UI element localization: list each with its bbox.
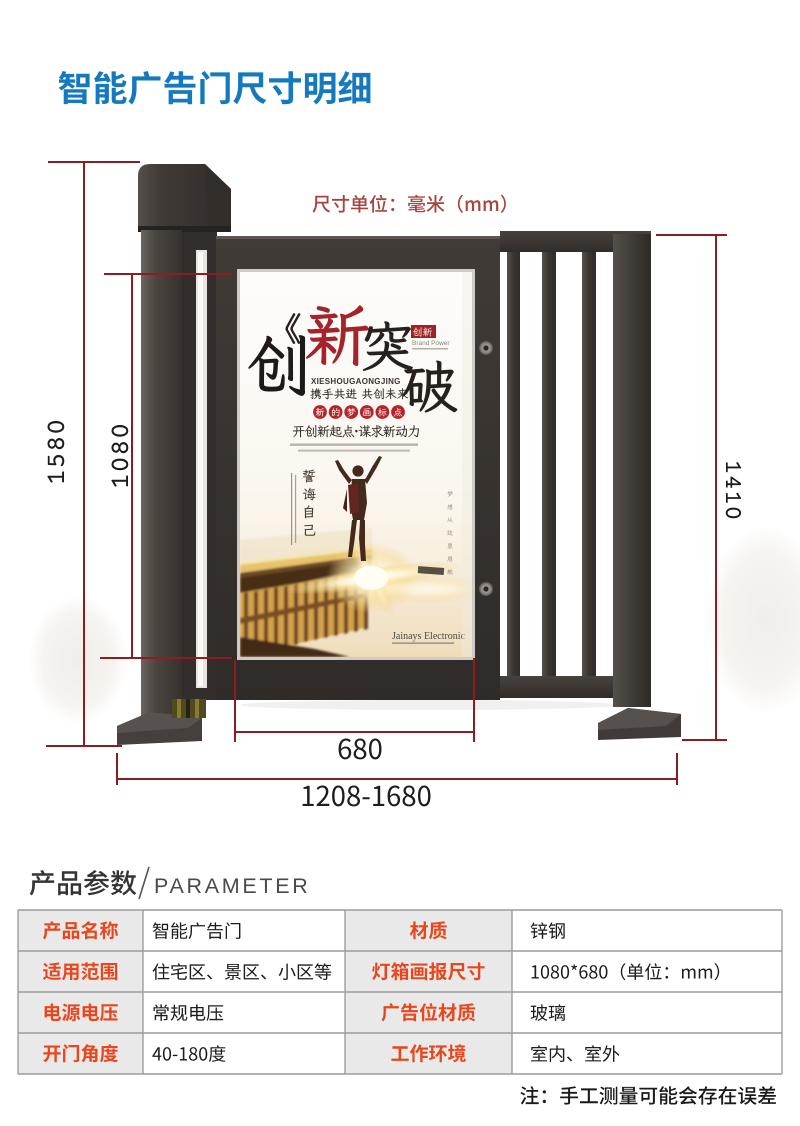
- svg-text:PARAMETER: PARAMETER: [154, 874, 311, 898]
- svg-text:Brand Power: Brand Power: [412, 340, 450, 347]
- svg-text:XIESHOUGAONGJING: XIESHOUGAONGJING: [311, 377, 401, 386]
- svg-text:Jainays Electronic: Jainays Electronic: [392, 631, 466, 642]
